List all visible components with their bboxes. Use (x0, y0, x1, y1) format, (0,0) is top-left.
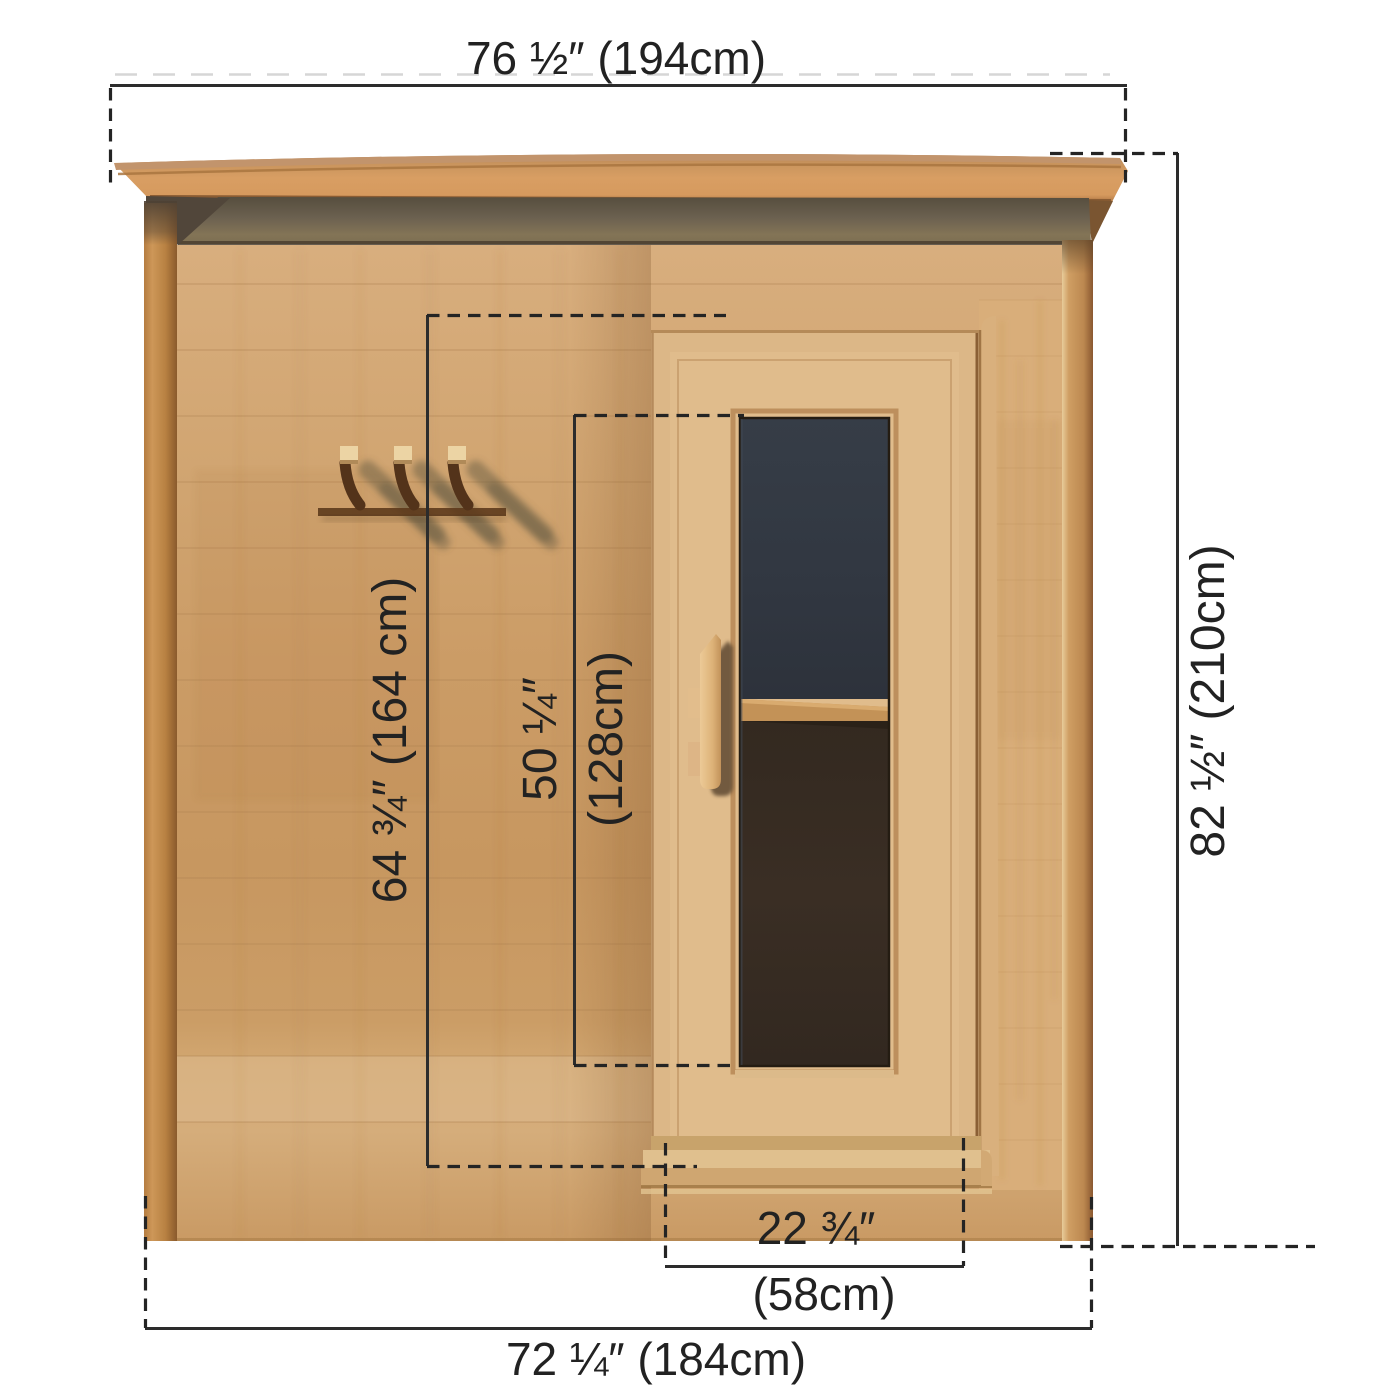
svg-text:50 ¼″: 50 ¼″ (514, 677, 567, 801)
svg-text:82 ½″ (210cm): 82 ½″ (210cm) (1182, 544, 1235, 857)
svg-text:(128cm): (128cm) (580, 651, 633, 827)
svg-text:76 ½″ (194cm): 76 ½″ (194cm) (466, 32, 766, 84)
svg-text:64 ¾″ (164 cm): 64 ¾″ (164 cm) (364, 577, 417, 903)
svg-text:22 ¾″: 22 ¾″ (757, 1202, 876, 1254)
svg-text:72 ¼″ (184cm): 72 ¼″ (184cm) (506, 1333, 806, 1385)
svg-text:(58cm): (58cm) (752, 1268, 895, 1320)
